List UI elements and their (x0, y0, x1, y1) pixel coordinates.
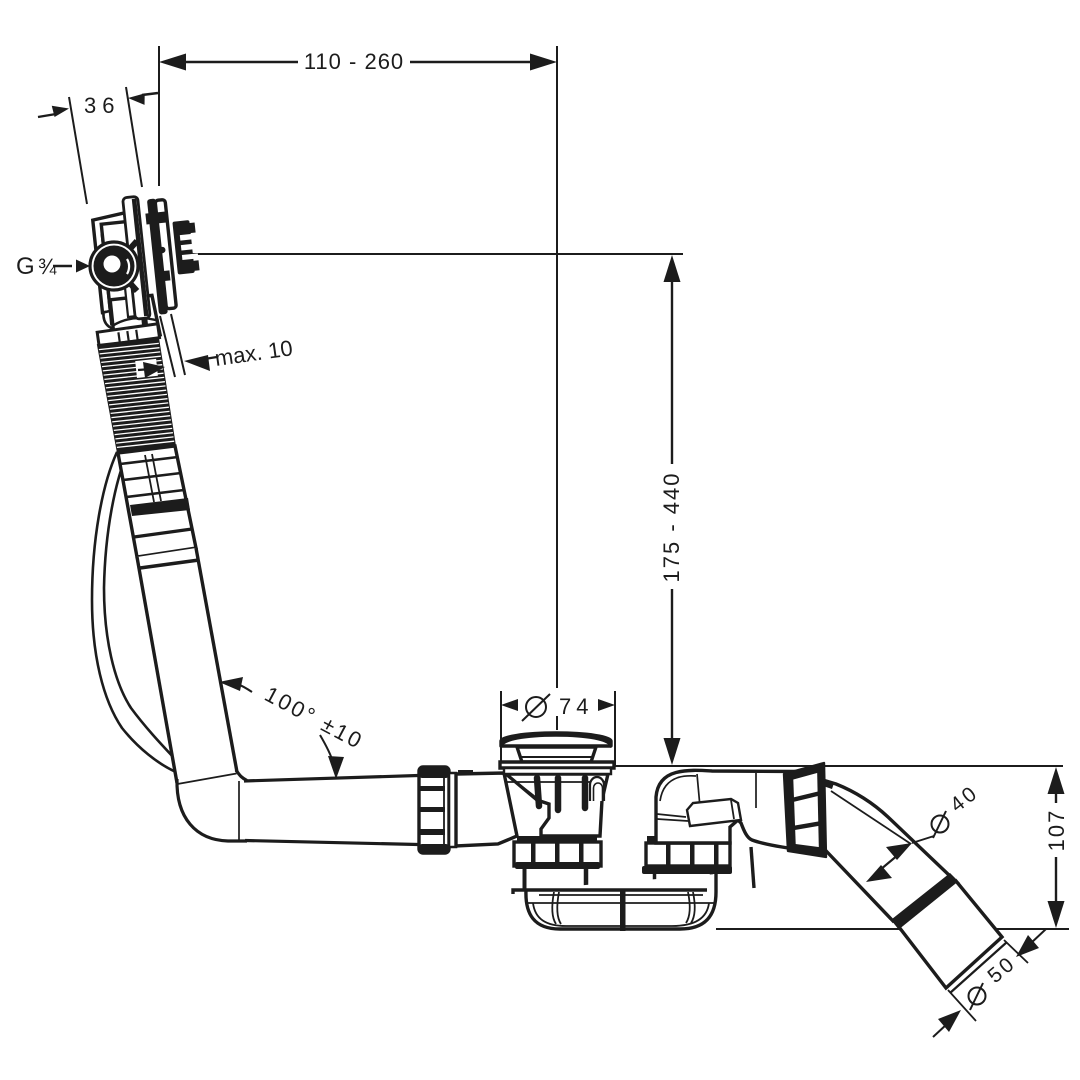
svg-text:110 - 260: 110 - 260 (304, 49, 404, 74)
svg-text:175 - 440: 175 - 440 (659, 472, 684, 583)
svg-text:74: 74 (559, 694, 593, 719)
svg-text:G: G (16, 253, 35, 280)
svg-text:36: 36 (84, 93, 120, 118)
svg-text:107: 107 (1044, 809, 1069, 852)
